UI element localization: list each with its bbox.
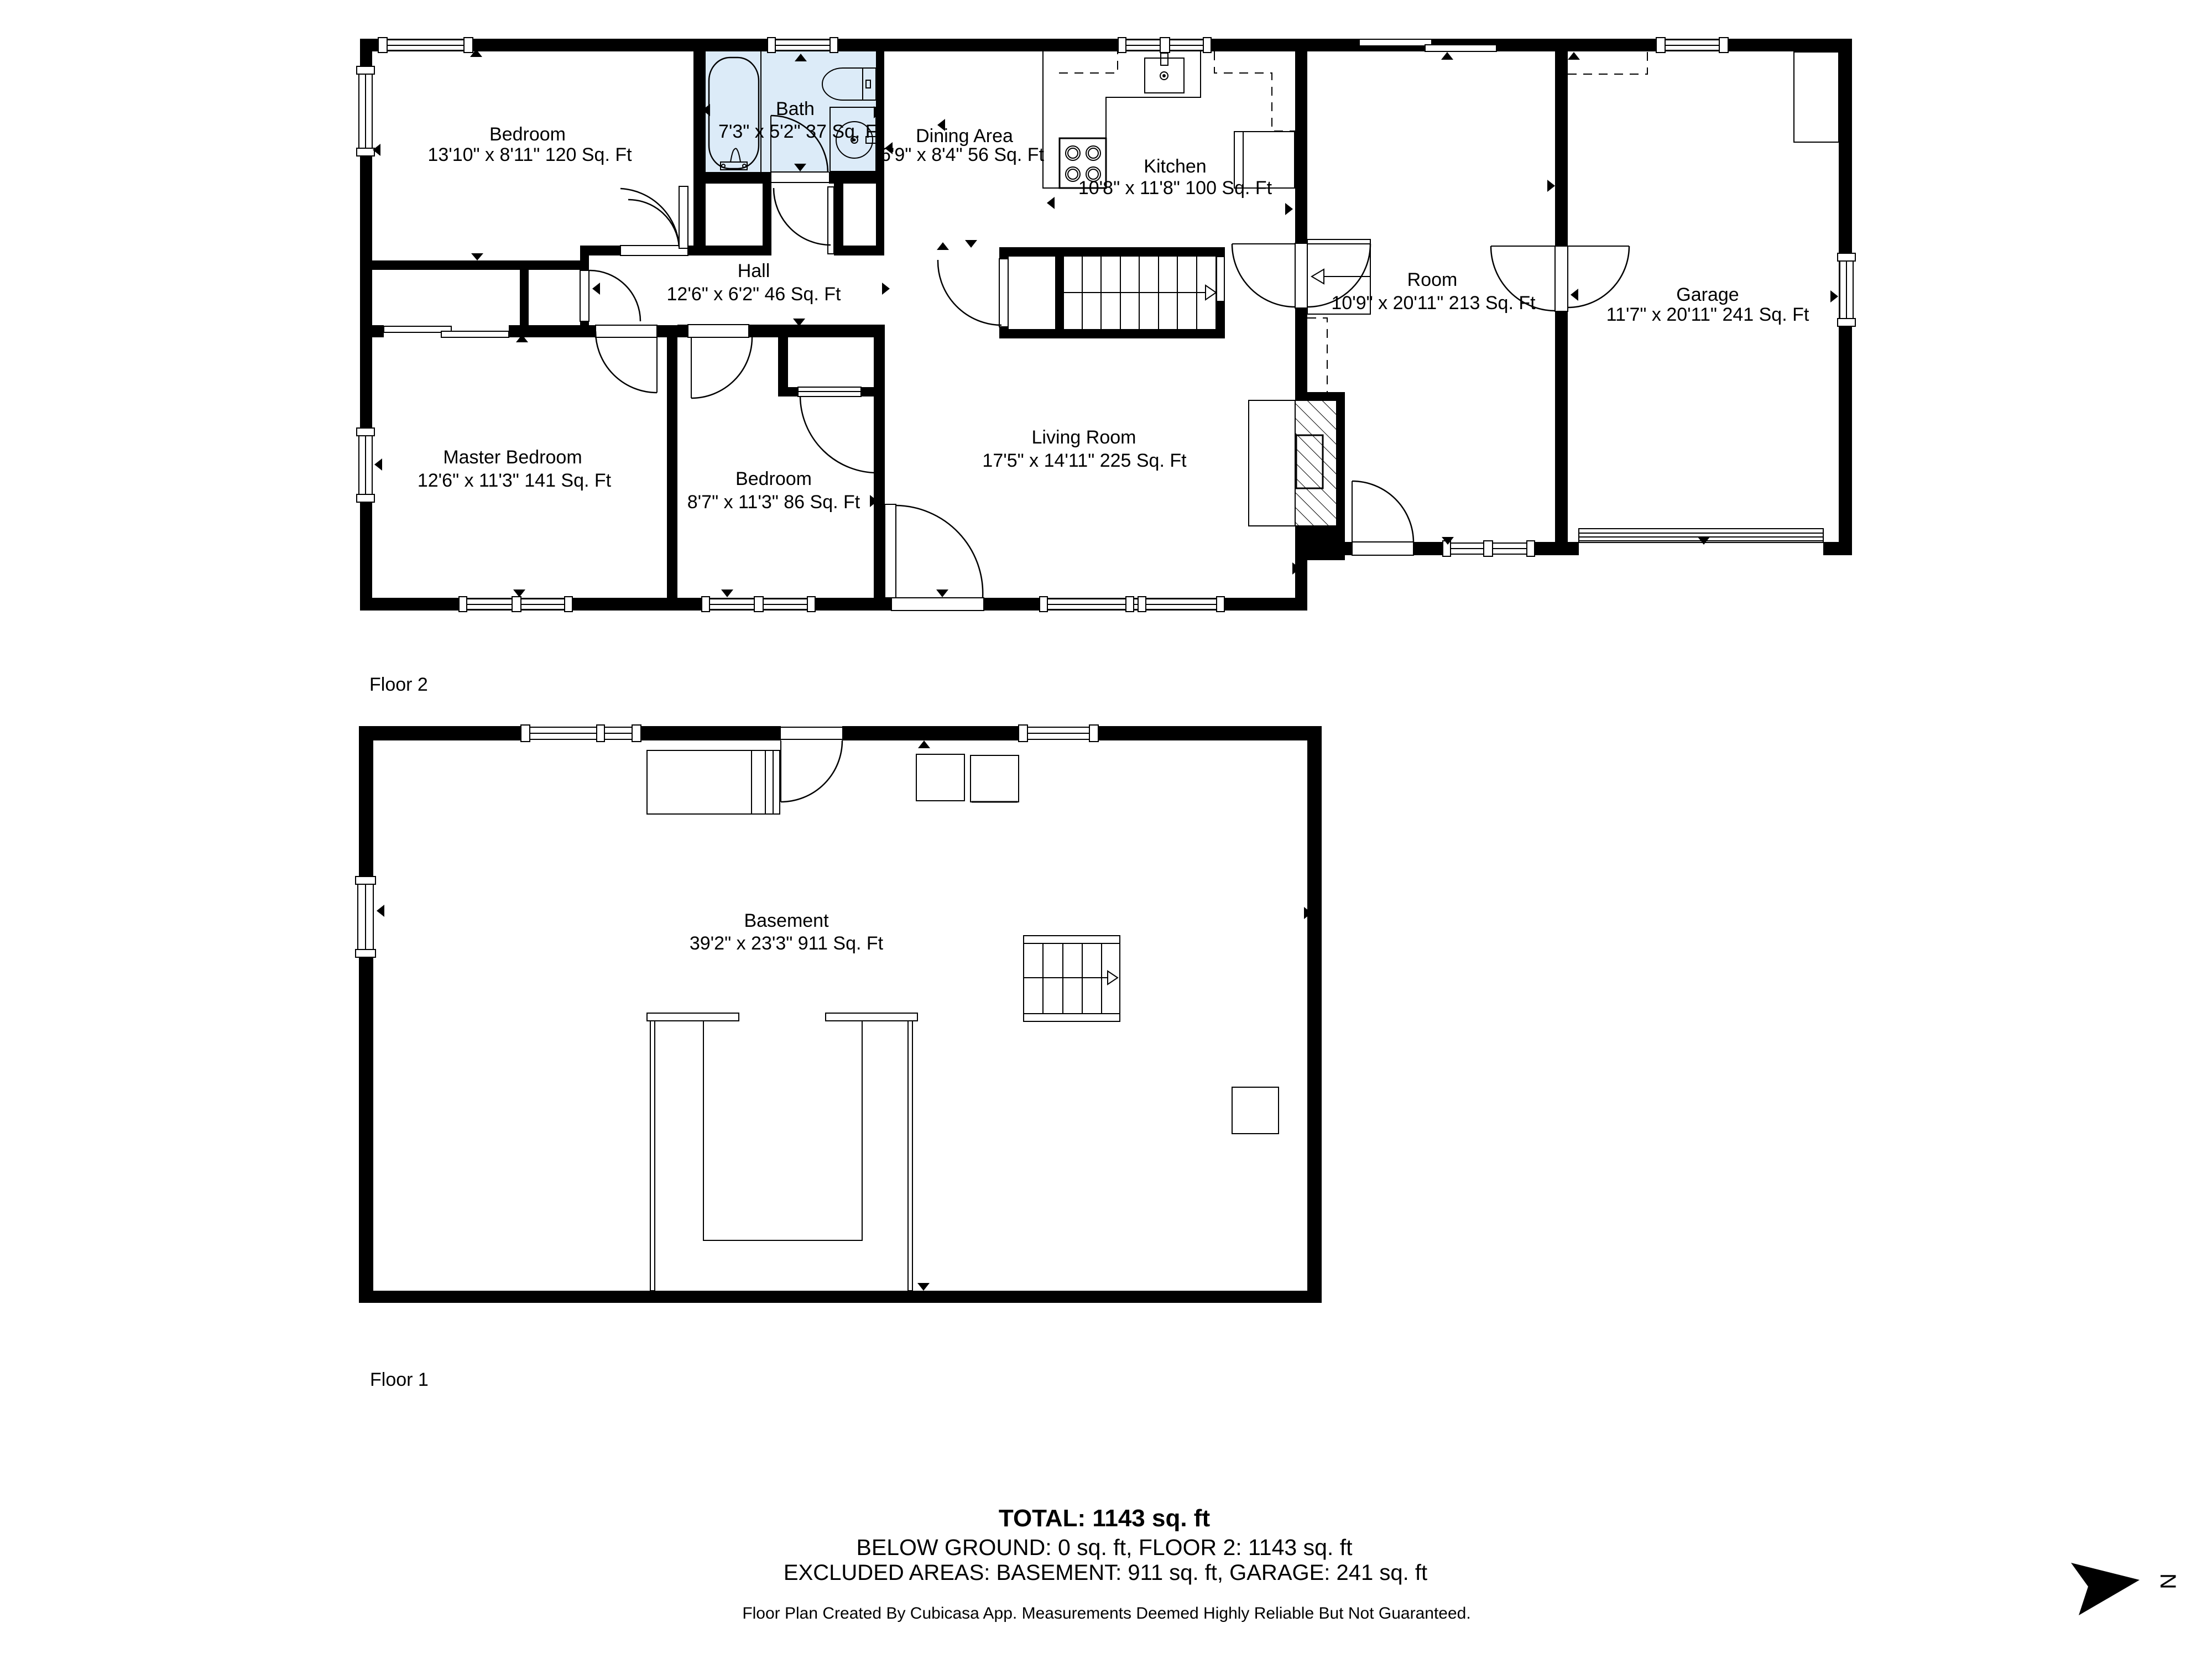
svg-text:Room: Room — [1407, 269, 1458, 290]
svg-text:11'7" x 20'11" 241 Sq. Ft: 11'7" x 20'11" 241 Sq. Ft — [1606, 304, 1809, 325]
svg-text:Floor 1: Floor 1 — [370, 1369, 429, 1390]
svg-text:Hall: Hall — [738, 260, 770, 281]
svg-text:Dining Area: Dining Area — [916, 126, 1013, 147]
svg-text:Kitchen: Kitchen — [1144, 156, 1206, 177]
svg-text:BELOW GROUND: 0 sq. ft, FLOOR: BELOW GROUND: 0 sq. ft, FLOOR 2: 1143 sq… — [857, 1535, 1353, 1560]
svg-text:Bedroom: Bedroom — [489, 124, 566, 145]
svg-text:13'10" x 8'11" 120 Sq. Ft: 13'10" x 8'11" 120 Sq. Ft — [427, 144, 632, 165]
svg-text:Garage: Garage — [1676, 284, 1739, 305]
svg-text:8'7" x 11'3" 86 Sq. Ft: 8'7" x 11'3" 86 Sq. Ft — [687, 492, 860, 513]
svg-text:Bedroom: Bedroom — [735, 468, 812, 489]
svg-text:39'2" x 23'3" 911 Sq. Ft: 39'2" x 23'3" 911 Sq. Ft — [690, 933, 884, 954]
svg-text:TOTAL: 1143 sq. ft: TOTAL: 1143 sq. ft — [999, 1505, 1211, 1532]
svg-text:10'8" x 11'8" 100 Sq. Ft: 10'8" x 11'8" 100 Sq. Ft — [1078, 178, 1272, 199]
svg-text:17'5" x 14'11" 225 Sq. Ft: 17'5" x 14'11" 225 Sq. Ft — [982, 450, 1187, 471]
svg-text:10'9" x 20'11" 213 Sq. Ft: 10'9" x 20'11" 213 Sq. Ft — [1331, 293, 1536, 314]
svg-text:EXCLUDED AREAS: BASEMENT: 911: EXCLUDED AREAS: BASEMENT: 911 sq. ft, GA… — [784, 1561, 1427, 1585]
svg-text:6'9" x 8'4" 56 Sq. Ft: 6'9" x 8'4" 56 Sq. Ft — [880, 144, 1045, 165]
svg-text:7'3" x 5'2" 37 Sq. Ft: 7'3" x 5'2" 37 Sq. Ft — [718, 121, 883, 142]
svg-text:12'6" x 6'2" 46 Sq. Ft: 12'6" x 6'2" 46 Sq. Ft — [667, 284, 842, 305]
svg-text:N: N — [2156, 1573, 2180, 1589]
svg-text:Master Bedroom: Master Bedroom — [443, 447, 582, 468]
svg-text:Floor Plan Created By Cubicasa: Floor Plan Created By Cubicasa App. Meas… — [742, 1604, 1470, 1623]
svg-text:Living Room: Living Room — [1032, 427, 1136, 448]
svg-text:Basement: Basement — [744, 910, 829, 931]
svg-text:Floor 2: Floor 2 — [369, 674, 428, 695]
svg-text:Bath: Bath — [776, 98, 815, 119]
svg-text:12'6" x 11'3" 141 Sq. Ft: 12'6" x 11'3" 141 Sq. Ft — [418, 470, 612, 491]
